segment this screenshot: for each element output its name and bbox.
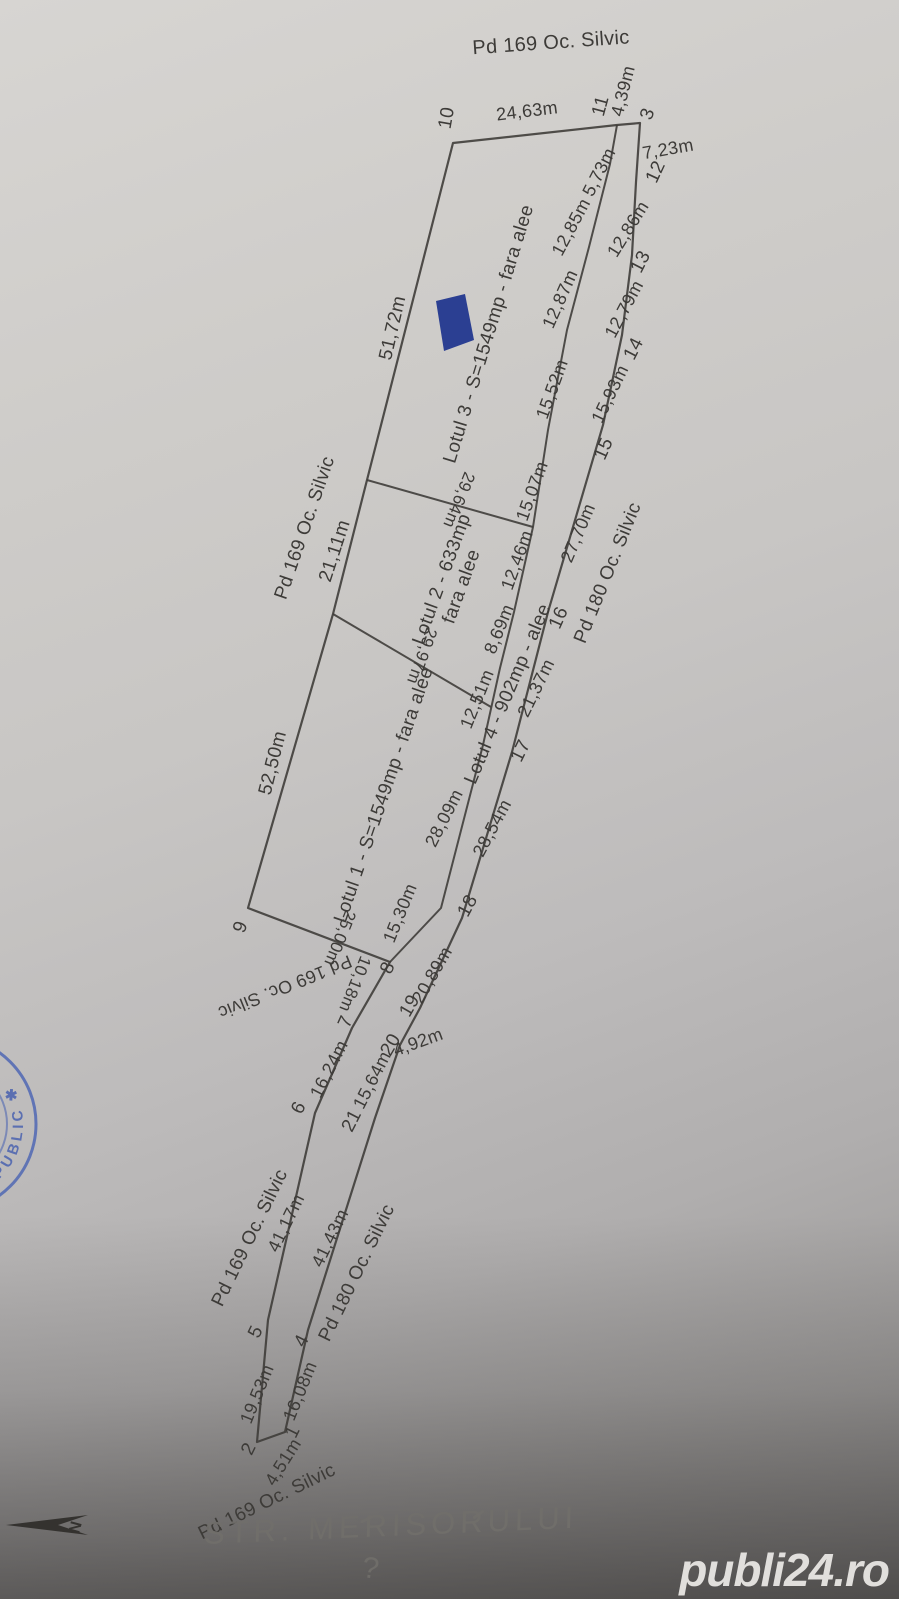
north-letter: N [66, 1520, 85, 1536]
publi24-watermark: publi24.ro [679, 1543, 889, 1597]
svg-text:R PUBLIC ✱: R PUBLIC ✱ [0, 1081, 27, 1195]
blue-marker-square [436, 294, 474, 351]
stamp-arc-text: R PUBLIC ✱ [0, 1081, 27, 1195]
scanned-survey-plan-photo: R PUBLIC ✱ N Pd 169 Oc. SilvicPd 169 Oc.… [0, 0, 899, 1599]
north-arrow-icon: N [6, 1515, 88, 1535]
notary-stamp-icon: R PUBLIC ✱ [0, 1036, 36, 1212]
point-number-label: 10 [435, 105, 460, 130]
